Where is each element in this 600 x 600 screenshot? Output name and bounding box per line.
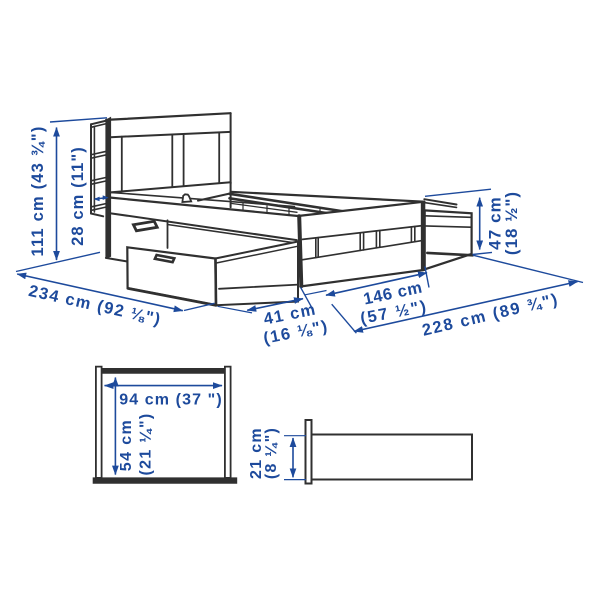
svg-text:(21 ¼"): (21 ¼") — [138, 413, 155, 476]
svg-text:94 cm (37 "): 94 cm (37 ") — [119, 392, 223, 409]
svg-text:28 cm (11"): 28 cm (11") — [69, 146, 87, 246]
svg-text:(18 ½"): (18 ½") — [502, 191, 521, 255]
svg-text:(8 ¼"): (8 ¼") — [263, 427, 280, 479]
svg-text:111 cm (43 ¾"): 111 cm (43 ¾") — [29, 125, 47, 256]
svg-text:54 cm: 54 cm — [118, 419, 135, 471]
svg-text:228 cm (89 ¾"): 228 cm (89 ¾") — [420, 290, 560, 339]
